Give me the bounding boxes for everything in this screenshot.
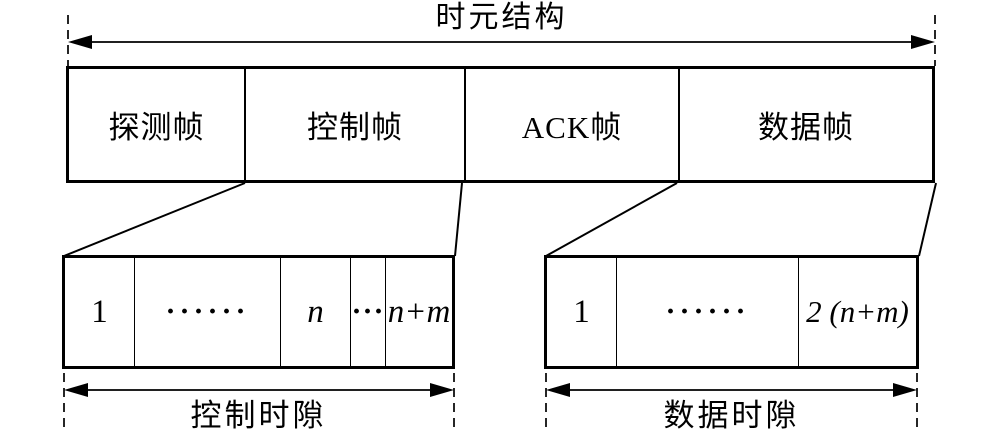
time-element-structure-diagram: 时元结构 探测帧 控制帧 ACK帧 数据帧 1 ······ n ··· n+m… [0, 0, 1000, 440]
probe-frame-cell: 探测帧 [69, 69, 246, 180]
data-slots-ellipsis-cell: ······ [617, 258, 799, 366]
control-slots-caption: 控制时隙 [62, 399, 455, 433]
control-frame-cell: 控制帧 [246, 69, 466, 180]
control-expansion-lines [64, 183, 462, 256]
control-slot-n-cell: n [281, 258, 351, 366]
control-slot-n-plus-m-cell: n+m [386, 258, 452, 366]
data-frame-cell: 数据帧 [680, 69, 932, 180]
data-slots-box: 1 ······ 2 (n+m) [544, 255, 919, 369]
data-slots-caption: 数据时隙 [544, 399, 919, 433]
ack-frame-cell: ACK帧 [466, 69, 680, 180]
data-expansion-lines [546, 183, 936, 256]
control-slots-ellipsis-cell: ······ [135, 258, 281, 366]
data-slot-1-cell: 1 [547, 258, 617, 366]
data-slot-2nm-cell: 2 (n+m) [799, 258, 916, 366]
control-slots-box: 1 ······ n ··· n+m [62, 255, 455, 369]
control-slot-1-cell: 1 [65, 258, 135, 366]
diagram-title: 时元结构 [68, 1, 935, 35]
control-slots-short-ellipsis-cell: ··· [351, 258, 386, 366]
main-frame-box: 探测帧 控制帧 ACK帧 数据帧 [66, 66, 935, 183]
